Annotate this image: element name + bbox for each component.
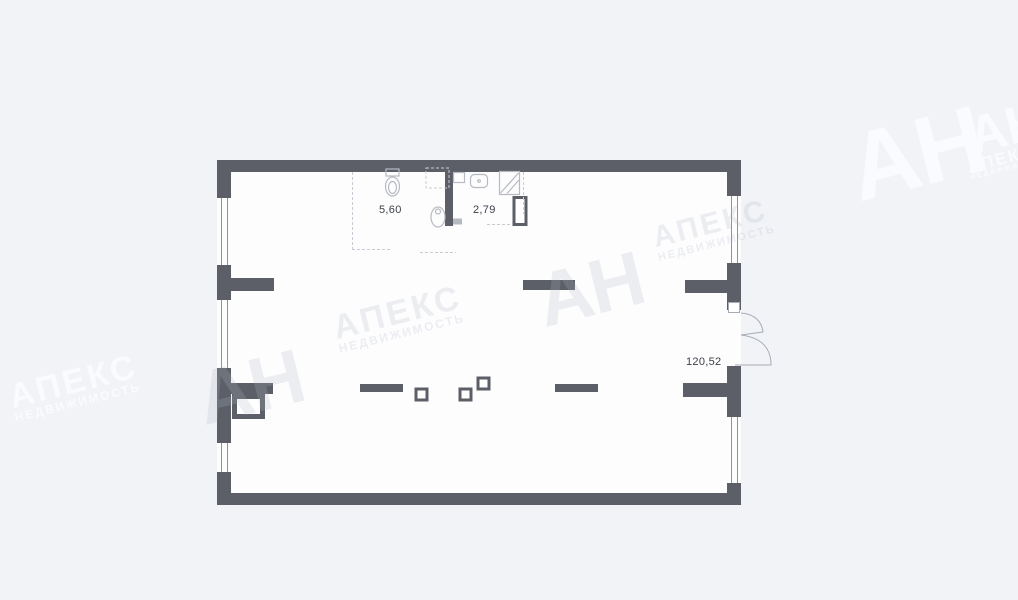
ventilation-shaft [514,198,526,225]
wall-stub-right-top [685,280,727,293]
column-marker [416,389,427,400]
window [727,417,741,483]
fixture-nub [453,219,462,225]
wall-stub-left-top [231,278,274,291]
room-area-label: 5,60 [379,204,402,216]
wall-left [217,472,231,505]
entrance-door [727,303,771,367]
door-opening [727,310,741,366]
wall-bar-center-right [555,384,598,392]
column-marker [478,378,489,389]
window [217,443,231,472]
wall-bar-center-left [360,384,403,392]
column-marker [460,389,471,400]
room-area-label: 120,52 [686,356,721,368]
floor-plan [0,0,1018,600]
wall-left [217,265,231,300]
wall-left [217,160,231,198]
wall-stub-right-bottom [683,383,727,397]
wall-right [727,160,741,196]
wall-right [727,366,741,417]
page-background: АПЕКС НЕДВИЖИМОСТЬ АН АН АПЕКС НЕДВИЖИМО… [0,0,1018,600]
door-jamb [729,303,740,313]
wall-right [727,483,741,505]
room-area-label: 2,79 [473,204,496,216]
wall-top [217,160,741,172]
window [217,198,231,265]
door-swing-arc-small [741,313,763,335]
wall-bottom [217,493,741,505]
